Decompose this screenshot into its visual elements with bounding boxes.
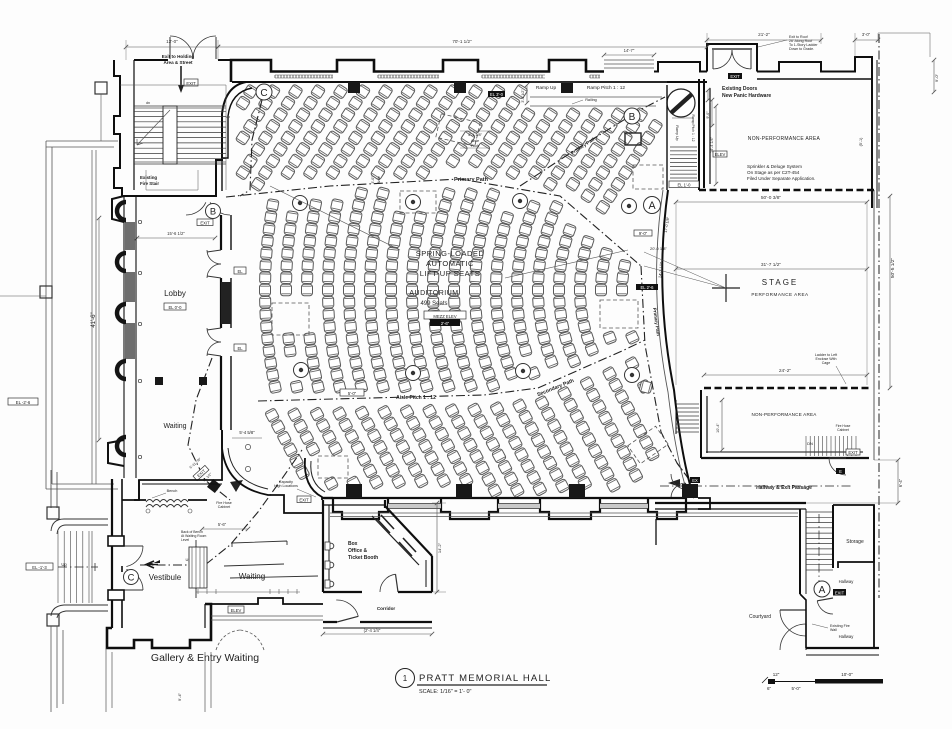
svg-text:NON-PERFORMANCE AREA: NON-PERFORMANCE AREA bbox=[751, 412, 817, 417]
svg-text:EL 2'-6: EL 2'-6 bbox=[641, 285, 655, 290]
svg-text:SCALE: 1/16" = 1'- 0": SCALE: 1/16" = 1'- 0" bbox=[419, 689, 472, 695]
svg-text:SPRING-LOADED: SPRING-LOADED bbox=[416, 249, 485, 258]
svg-text:AUDITORIUM: AUDITORIUM bbox=[409, 290, 458, 297]
svg-text:Wall: Wall bbox=[830, 628, 837, 632]
svg-text:EXIT: EXIT bbox=[200, 220, 210, 225]
svg-text:Cabinet: Cabinet bbox=[218, 505, 230, 509]
svg-text:5'-4 5/8": 5'-4 5/8" bbox=[239, 430, 255, 435]
svg-text:NON-PERFORMANCE AREA: NON-PERFORMANCE AREA bbox=[748, 136, 821, 142]
svg-text:EL 0'-0: EL 0'-0 bbox=[169, 305, 183, 310]
svg-text:EXIT: EXIT bbox=[848, 450, 858, 455]
svg-text:Hallway & Exit Passage: Hallway & Exit Passage bbox=[756, 485, 812, 491]
svg-text:B: B bbox=[629, 112, 636, 123]
svg-text:EL 3'-0: EL 3'-0 bbox=[490, 92, 504, 97]
svg-text:Lobby: Lobby bbox=[164, 289, 186, 298]
svg-text:New Panic Hardware: New Panic Hardware bbox=[722, 93, 771, 99]
svg-text:Courtyard: Courtyard bbox=[749, 614, 771, 620]
svg-text:499 Seats: 499 Seats bbox=[420, 301, 447, 307]
svg-text:A: A bbox=[819, 585, 826, 596]
svg-text:70'-1 1/2": 70'-1 1/2" bbox=[452, 39, 472, 44]
svg-text:9'-4": 9'-4" bbox=[177, 692, 182, 701]
svg-text:3'-0 1/2": 3'-0 1/2" bbox=[521, 89, 525, 103]
svg-text:C: C bbox=[128, 573, 135, 583]
svg-text:6": 6" bbox=[767, 686, 772, 691]
svg-text:14'-7": 14'-7" bbox=[624, 48, 635, 53]
svg-text:EXIT: EXIT bbox=[730, 74, 740, 79]
svg-text:EXIT: EXIT bbox=[835, 590, 845, 595]
svg-text:EL: EL bbox=[237, 346, 243, 351]
svg-text:PERFORMANCE AREA: PERFORMANCE AREA bbox=[751, 292, 809, 297]
svg-text:Cabinet: Cabinet bbox=[837, 428, 849, 432]
svg-text:EX: EX bbox=[692, 478, 698, 483]
svg-text:Vestibule: Vestibule bbox=[149, 573, 182, 582]
svg-text:Level: Level bbox=[181, 538, 189, 542]
svg-text:dn: dn bbox=[146, 101, 150, 105]
svg-text:10'-0": 10'-0" bbox=[841, 672, 853, 677]
svg-text:1: 1 bbox=[403, 674, 408, 683]
svg-text:Exit to Holding: Exit to Holding bbox=[162, 54, 195, 59]
svg-text:3'-0": 3'-0" bbox=[862, 32, 871, 37]
svg-text:EL -1'-3: EL -1'-3 bbox=[32, 565, 47, 570]
svg-text:14'-2": 14'-2" bbox=[437, 542, 442, 553]
svg-text:Sprinkler & Deluge System: Sprinkler & Deluge System bbox=[747, 164, 802, 169]
svg-text:up: up bbox=[226, 115, 230, 119]
svg-text:Office &: Office & bbox=[348, 548, 368, 554]
svg-text:C: C bbox=[260, 88, 267, 99]
svg-text:Pitch: Pitch bbox=[471, 144, 479, 148]
svg-text:Ramp Pitch 1 : 12: Ramp Pitch 1 : 12 bbox=[587, 85, 625, 91]
svg-text:Corridor: Corridor bbox=[377, 606, 396, 611]
svg-text:EXIT: EXIT bbox=[299, 497, 309, 502]
svg-text:Hallway: Hallway bbox=[839, 634, 855, 639]
svg-text:Ramp Up: Ramp Up bbox=[675, 125, 679, 140]
svg-text:LIFT-UP SEATS: LIFT-UP SEATS bbox=[420, 269, 480, 278]
svg-text:Area & Street: Area & Street bbox=[163, 60, 193, 65]
svg-text:6'-4": 6'-4" bbox=[898, 478, 903, 487]
svg-text:Ramp Pitch 1 : 12: Ramp Pitch 1 : 12 bbox=[691, 115, 695, 142]
svg-text:Railing: Railing bbox=[585, 98, 597, 102]
svg-text:12": 12" bbox=[773, 672, 780, 677]
svg-text:Ticket Booth: Ticket Booth bbox=[348, 555, 378, 561]
svg-text:9'-0": 9'-0" bbox=[706, 111, 710, 119]
svg-text:Aisle: Aisle bbox=[377, 176, 381, 184]
svg-text:9'-0": 9'-0" bbox=[639, 231, 648, 236]
svg-text:(2'-4 1/4": (2'-4 1/4" bbox=[364, 628, 381, 633]
svg-text:DN: DN bbox=[807, 441, 813, 446]
svg-text:Bench: Bench bbox=[167, 489, 178, 493]
svg-text:24'-2": 24'-2" bbox=[779, 368, 792, 374]
svg-text:Existing: Existing bbox=[140, 175, 157, 180]
svg-text:On Stage as per C2T-454: On Stage as per C2T-454 bbox=[747, 170, 800, 175]
svg-text:Hallway: Hallway bbox=[839, 579, 855, 584]
svg-text:Fire Stair: Fire Stair bbox=[140, 181, 159, 186]
svg-text:EL 1'-0: EL 1'-0 bbox=[678, 182, 692, 187]
svg-text:10'-4": 10'-4" bbox=[716, 423, 720, 433]
svg-text:5'-6": 5'-6" bbox=[218, 522, 227, 527]
svg-text:AUTOMATIC: AUTOMATIC bbox=[426, 259, 474, 268]
svg-text:A: A bbox=[648, 200, 656, 212]
svg-text:9'-0": 9'-0" bbox=[934, 73, 939, 82]
svg-text:4'-1 1/8": 4'-1 1/8" bbox=[468, 133, 483, 137]
svg-text:Aisle Pitch 1 : 12: Aisle Pitch 1 : 12 bbox=[396, 395, 436, 401]
svg-text:Aisle: Aisle bbox=[471, 139, 479, 143]
svg-text:21'-2": 21'-2" bbox=[758, 32, 770, 37]
svg-text:50'-0 3/8": 50'-0 3/8" bbox=[761, 195, 782, 201]
svg-text:Waiting: Waiting bbox=[239, 572, 265, 581]
svg-text:15'-6 1/2": 15'-6 1/2" bbox=[167, 231, 185, 236]
svg-text:PRATT MEMORIAL HALL: PRATT MEMORIAL HALL bbox=[419, 673, 551, 684]
svg-text:3'-0": 3'-0" bbox=[371, 176, 375, 184]
svg-text:50'-5 1/2": 50'-5 1/2" bbox=[890, 258, 896, 279]
svg-text:Storage: Storage bbox=[846, 539, 864, 545]
svg-text:High Locations: High Locations bbox=[274, 484, 298, 488]
svg-text:E: E bbox=[839, 469, 842, 474]
svg-text:2'-6": 2'-6" bbox=[441, 321, 450, 326]
svg-text:EL -2'-6: EL -2'-6 bbox=[16, 400, 31, 405]
svg-text:Down to Grade.: Down to Grade. bbox=[789, 47, 814, 51]
svg-text:(5'-1): (5'-1) bbox=[859, 137, 863, 146]
svg-text:Up: Up bbox=[61, 562, 67, 567]
svg-text:5'-0": 5'-0" bbox=[348, 391, 357, 396]
svg-text:Primary Path: Primary Path bbox=[454, 177, 489, 183]
svg-text:12'-0": 12'-0" bbox=[166, 39, 178, 44]
svg-text:20'-0 1/8": 20'-0 1/8" bbox=[650, 246, 667, 251]
svg-text:Existing Doors: Existing Doors bbox=[722, 86, 758, 92]
svg-text:Ramp Up: Ramp Up bbox=[536, 85, 557, 91]
svg-text:Box: Box bbox=[348, 541, 358, 547]
svg-text:Waiting: Waiting bbox=[163, 423, 186, 430]
svg-text:5'-0": 5'-0" bbox=[792, 686, 801, 691]
svg-text:31'-7 1/2": 31'-7 1/2" bbox=[761, 262, 782, 268]
svg-text:16'-4 1/4": 16'-4 1/4" bbox=[710, 136, 714, 153]
svg-text:ELEV: ELEV bbox=[231, 608, 242, 613]
svg-text:EL: EL bbox=[237, 269, 243, 274]
svg-text:STAGE: STAGE bbox=[762, 278, 799, 287]
svg-text:B: B bbox=[210, 207, 216, 217]
svg-text:Filed Under Separate Applicati: Filed Under Separate Application. bbox=[747, 176, 815, 181]
svg-text:MEZZ ELEV: MEZZ ELEV bbox=[433, 314, 456, 319]
svg-text:Cage: Cage bbox=[822, 361, 831, 365]
